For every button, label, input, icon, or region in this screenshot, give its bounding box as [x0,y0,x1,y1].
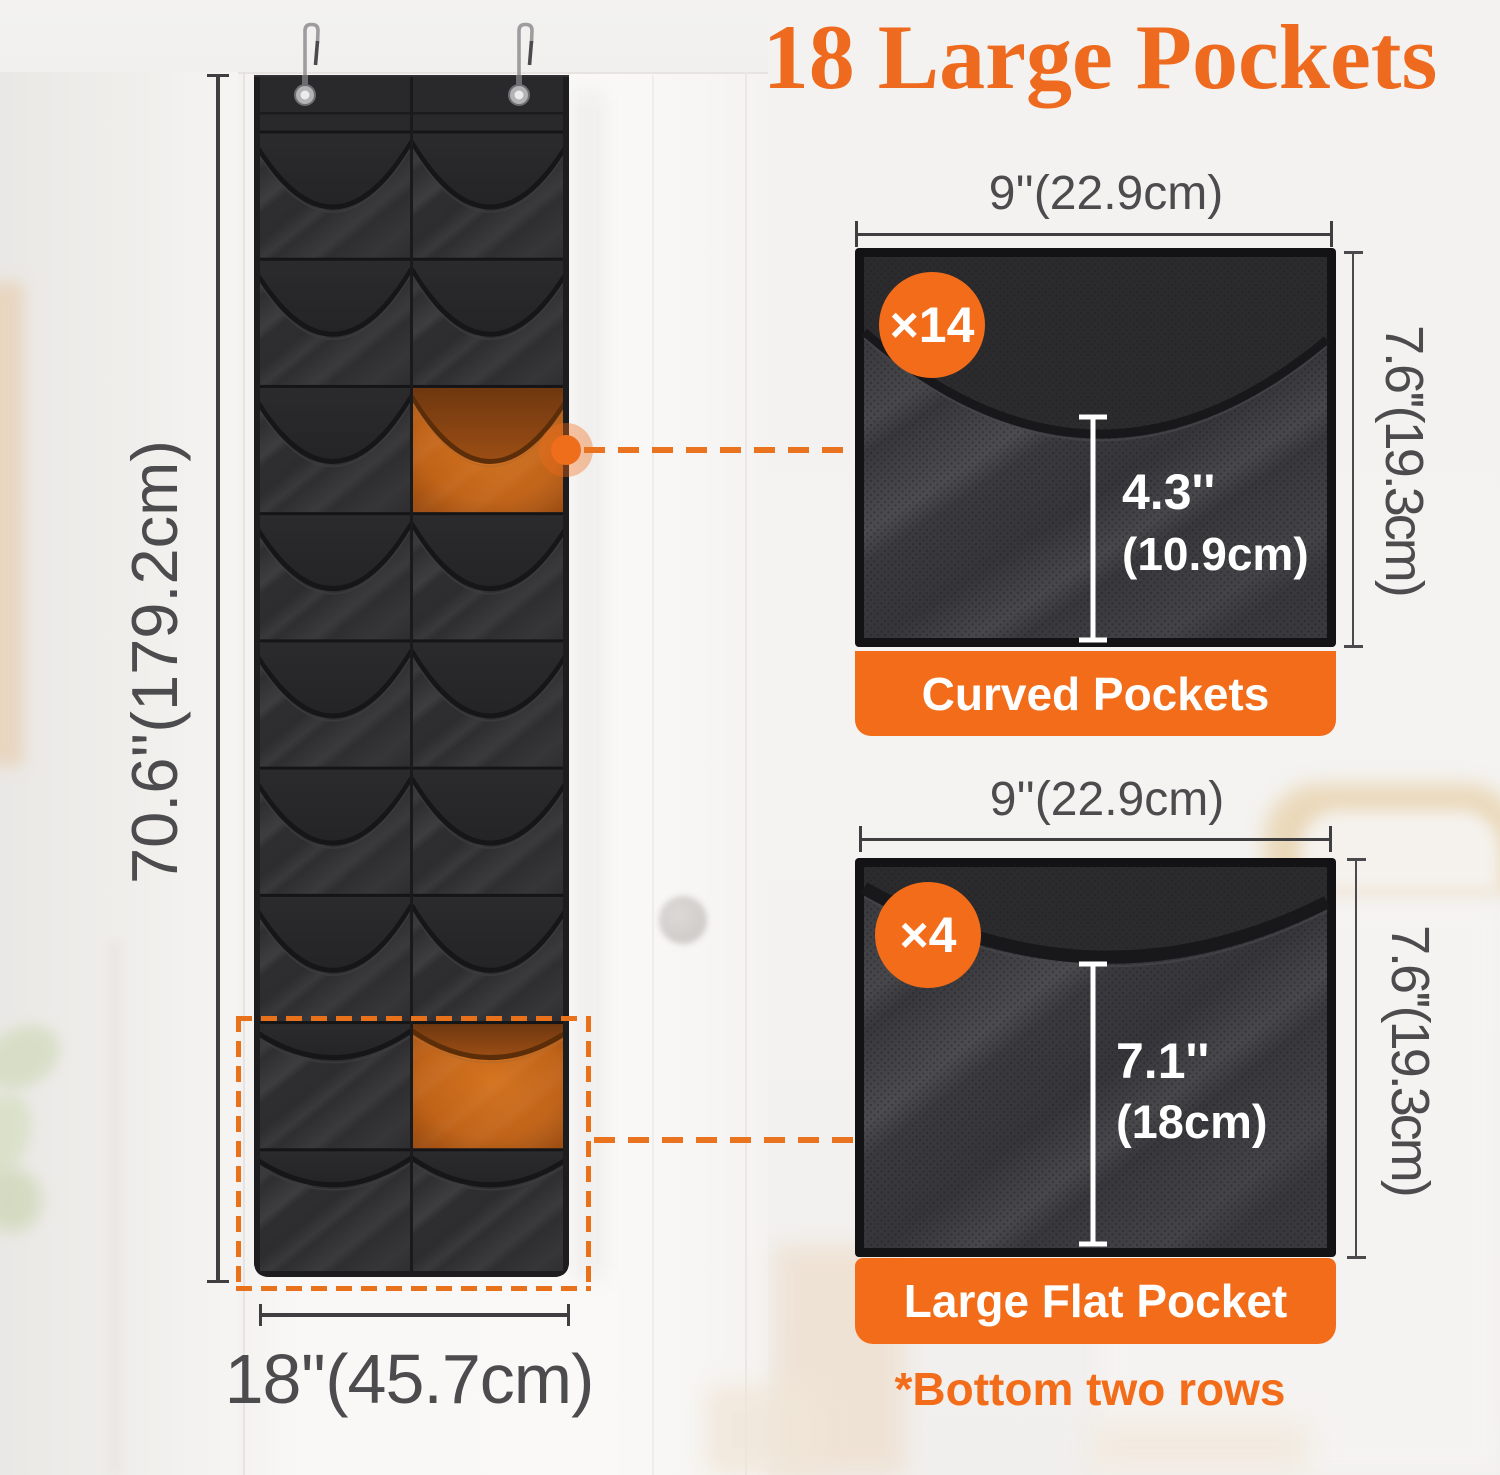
svg-text:×14: ×14 [890,297,975,353]
svg-text:×4: ×4 [899,907,956,963]
